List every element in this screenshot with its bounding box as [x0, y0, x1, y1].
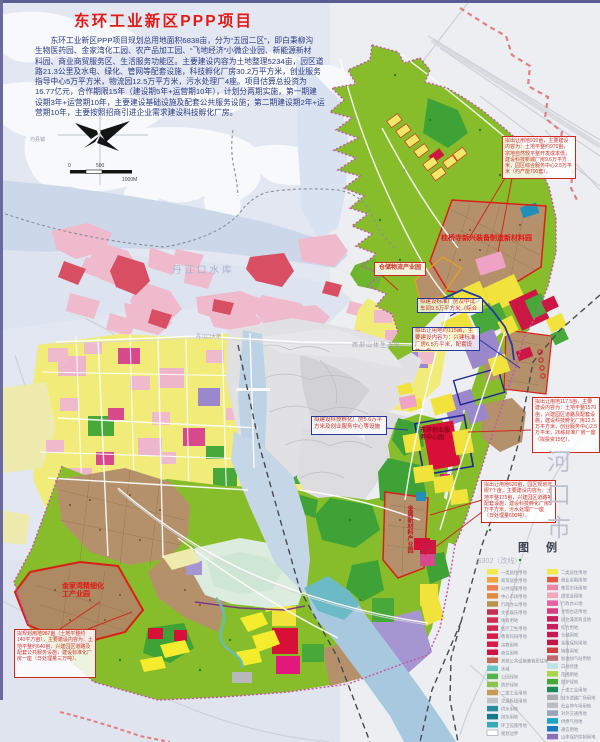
svg-text:防护绿地: 防护绿地: [561, 679, 579, 686]
svg-text:旅馆业用地: 旅馆业用地: [561, 592, 583, 599]
svg-text:医疗卫生用地: 医疗卫生用地: [501, 625, 527, 632]
svg-text:防护绿地: 防护绿地: [501, 682, 519, 689]
svg-text:供燃气用地: 供燃气用地: [561, 718, 583, 725]
svg-text:一类居住用地: 一类居住用地: [501, 569, 527, 576]
svg-text:二类居住用地: 二类居住用地: [561, 569, 587, 576]
svg-text:交通枢纽用地: 交通枢纽用地: [501, 698, 527, 705]
svg-text:集贸市场用地: 集贸市场用地: [561, 585, 587, 592]
svg-text:白地待建: 白地待建: [561, 663, 579, 670]
svg-text:行政办公用地: 行政办公用地: [501, 601, 527, 608]
svg-text:公共设施用地: 公共设施用地: [501, 585, 527, 592]
svg-text:商业金融用地: 商业金融用地: [561, 577, 587, 584]
svg-text:综合用地: 综合用地: [561, 624, 579, 631]
svg-text:排水用地: 排水用地: [501, 714, 519, 721]
svg-text:山体保护控制用地: 山体保护控制用地: [561, 734, 596, 741]
svg-text:二类工业用地: 二类工业用地: [501, 690, 527, 697]
svg-text:水域: 水域: [501, 665, 510, 671]
svg-text:中心市场用地: 中心市场用地: [501, 593, 527, 600]
svg-text:教育科研用地: 教育科研用地: [501, 633, 527, 640]
svg-text:社会停车场用地: 社会停车场用地: [561, 702, 592, 709]
svg-text:体育用地: 体育用地: [501, 617, 519, 624]
svg-text:S302（改线）: S302（改线）: [477, 556, 521, 565]
svg-text:居住兼容商业地: 居住兼容商业地: [561, 616, 592, 623]
svg-text:供水用地: 供水用地: [501, 706, 519, 713]
svg-text:宗教用地: 宗教用地: [501, 641, 519, 648]
svg-text:规划边界: 规划边界: [501, 730, 519, 737]
svg-text:通信用地: 通信用地: [561, 726, 579, 733]
svg-text:金融保险用地: 金融保险用地: [561, 639, 587, 646]
svg-text:文化娱乐用地: 文化娱乐用地: [501, 609, 527, 616]
svg-text:商贸居住用地: 商贸居住用地: [501, 577, 527, 584]
svg-text:特殊用地: 特殊用地: [561, 647, 579, 654]
svg-text:仓储用地: 仓储用地: [561, 632, 579, 639]
svg-text:一类工业用地: 一类工业用地: [561, 687, 587, 694]
svg-text:行政办公地: 行政办公地: [561, 600, 583, 607]
svg-text:城市道路广场用地: 城市道路广场用地: [561, 694, 596, 701]
svg-text:公园绿地: 公园绿地: [501, 673, 519, 680]
svg-text:环卫设施用地: 环卫设施用地: [501, 722, 527, 729]
svg-text:商住用地: 商住用地: [501, 649, 519, 656]
svg-text:加油加气站用地: 加油加气站用地: [561, 655, 592, 662]
svg-text:对外交通用地: 对外交通用地: [561, 710, 587, 717]
svg-text:文物古迹用地: 文物古迹用地: [561, 608, 587, 615]
svg-text:其他公共设施兼容居住地: 其他公共设施兼容居住地: [501, 657, 549, 664]
svg-text:苗圃用地: 苗圃用地: [561, 671, 579, 678]
